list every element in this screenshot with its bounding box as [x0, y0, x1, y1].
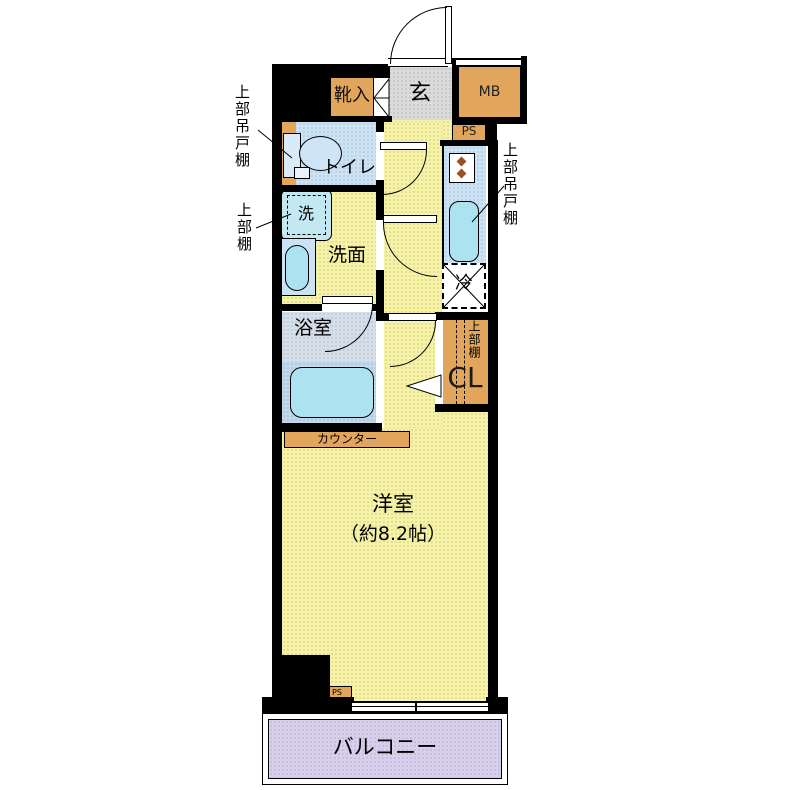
- wall: [435, 404, 488, 412]
- wall: [440, 140, 497, 146]
- wall: [372, 304, 384, 311]
- closet-upper-shelf-label: 上部棚: [468, 320, 480, 359]
- balcony-sliding-window: [352, 701, 488, 713]
- pipe-shaft-upper-label: PS: [452, 125, 486, 139]
- bathroom-label: 浴室: [286, 318, 340, 340]
- wall: [282, 304, 322, 311]
- western-room-size-label: （約8.2帖）: [323, 524, 463, 546]
- closet-label: CL: [442, 362, 488, 394]
- wall: [262, 697, 354, 713]
- kitchen-sink: [449, 201, 479, 262]
- floor-plan: 玄 靴入 MB PS トイレ 洗 洗面 浴室 冷 CL 上部棚 カウンター PS…: [0, 0, 790, 790]
- toilet-door-leaf: [380, 142, 427, 150]
- washstand-sink: [285, 245, 309, 291]
- entrance-door-swing: [390, 7, 447, 64]
- washing-machine-label: 洗: [290, 205, 322, 223]
- wall: [282, 423, 382, 432]
- toilet-paper-holder: [294, 167, 310, 179]
- sliding-window-rail: [352, 706, 488, 707]
- meter-box-label: MB: [458, 84, 521, 100]
- wall: [272, 76, 330, 122]
- toilet-label: トイレ: [320, 158, 378, 179]
- upper-shelf-left-label: 上部棚: [236, 202, 251, 253]
- wall: [376, 122, 384, 132]
- balcony-label: バルコニー: [268, 735, 502, 759]
- sliding-window-lock: [415, 702, 417, 711]
- upper-cabinet-right-label: 上部吊戸棚: [502, 142, 517, 227]
- wall: [282, 185, 376, 192]
- meter-box-window: [456, 58, 521, 66]
- bathroom-door-leaf: [322, 296, 373, 304]
- washroom-door-leaf: [383, 215, 437, 223]
- western-room-label: 洋室: [338, 492, 448, 516]
- counter-label: カウンター: [284, 433, 410, 447]
- main-room-door-leaf: [388, 313, 437, 321]
- wall: [272, 122, 282, 660]
- wall: [435, 312, 488, 320]
- upper-cabinet-left-label: 上部吊戸棚: [234, 84, 249, 169]
- shoe-cabinet-label: 靴入: [326, 86, 378, 107]
- closet-front-floor: [442, 412, 488, 432]
- pipe-shaft-lower-label: PS: [322, 688, 352, 697]
- washroom-label: 洗面: [320, 245, 374, 267]
- wall: [488, 140, 498, 713]
- wall: [521, 56, 527, 124]
- bathtub: [290, 367, 374, 418]
- entrance-label: 玄: [400, 81, 440, 106]
- refrigerator-label: 冷: [442, 274, 486, 295]
